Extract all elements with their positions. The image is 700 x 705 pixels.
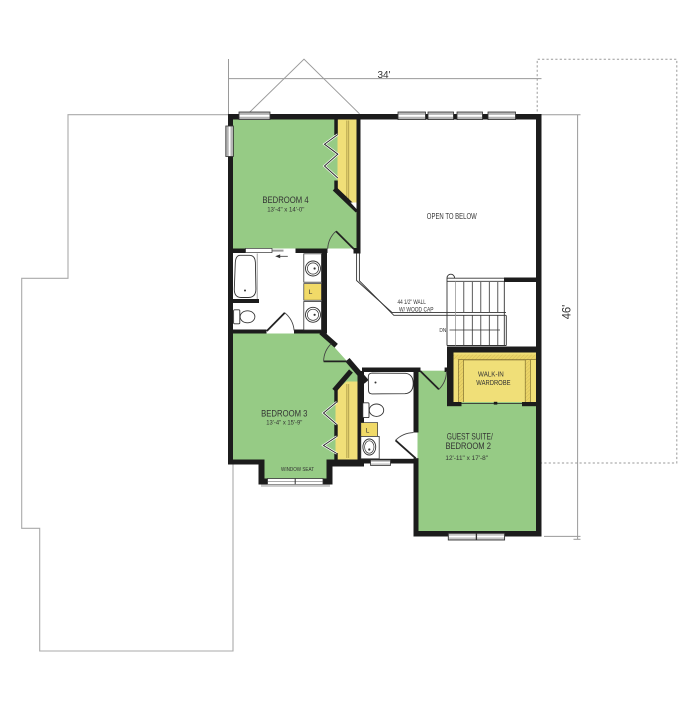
svg-text:OPEN TO BELOW: OPEN TO BELOW: [427, 212, 477, 221]
svg-text:13'-4" x 14'-0": 13'-4" x 14'-0": [267, 206, 305, 213]
svg-text:GUEST SUITE/: GUEST SUITE/: [447, 431, 493, 441]
svg-text:L: L: [366, 428, 370, 435]
svg-text:34': 34': [378, 69, 391, 81]
svg-text:BEDROOM 3: BEDROOM 3: [261, 409, 307, 419]
svg-text:W/ WOOD CAP: W/ WOOD CAP: [399, 307, 434, 313]
svg-text:DN: DN: [439, 328, 446, 334]
svg-text:46': 46': [562, 305, 574, 320]
svg-text:44 1/2" WALL: 44 1/2" WALL: [398, 300, 427, 306]
svg-text:BEDROOM 2: BEDROOM 2: [445, 441, 491, 451]
svg-text:12'-11" x 17'-8": 12'-11" x 17'-8": [445, 455, 488, 462]
svg-text:BEDROOM 4: BEDROOM 4: [262, 195, 308, 205]
svg-text:WINDOW SEAT: WINDOW SEAT: [281, 467, 314, 473]
svg-text:WALK-IN: WALK-IN: [478, 370, 504, 379]
svg-text:L: L: [309, 289, 313, 296]
svg-text:WARDROBE: WARDROBE: [476, 378, 510, 387]
svg-text:13'-4" x 15'-9": 13'-4" x 15'-9": [266, 420, 303, 427]
